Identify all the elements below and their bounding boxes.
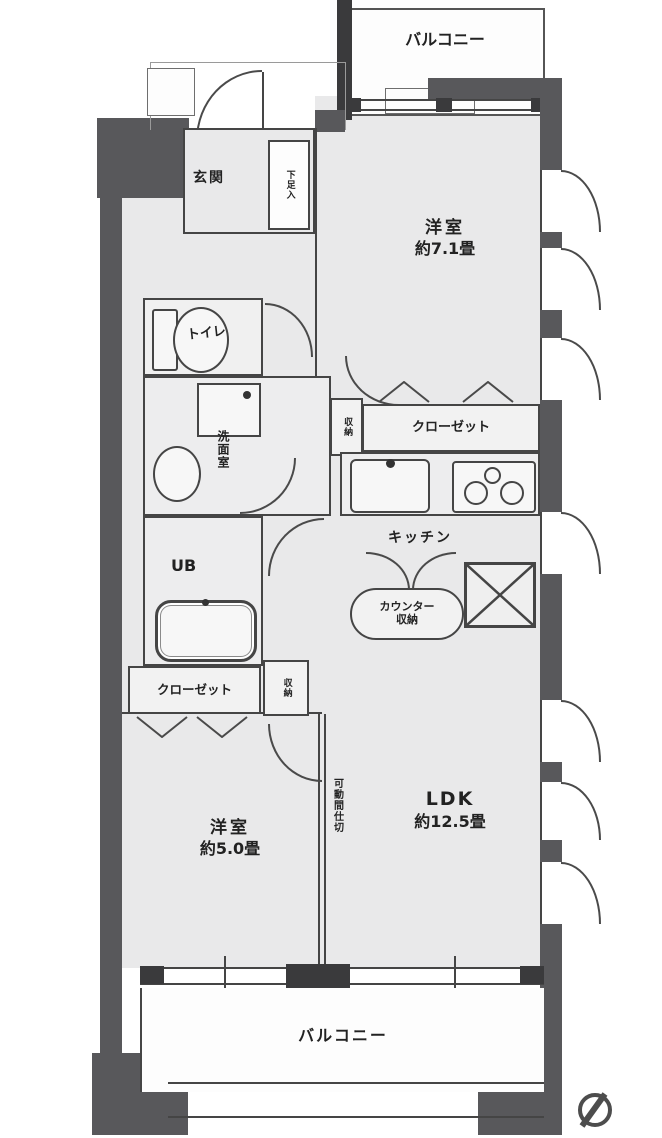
storage-top: 収納 (330, 398, 363, 456)
washbasin-icon (153, 446, 201, 502)
closet-top-bifold-icon (378, 381, 430, 403)
closet-bottom: クローゼット (128, 666, 261, 714)
closet-top-label: クローゼット (412, 420, 490, 436)
floor-plan: バルコニー 玄関 下足入 洋室 約7.1畳 (0, 0, 662, 1138)
stove-icon (452, 461, 536, 513)
room-western-7-size: 約7.1畳 (360, 239, 530, 259)
sliding-window-bottom (140, 964, 544, 988)
window-arc (561, 170, 601, 232)
window-arc (561, 782, 601, 840)
shoe-storage-label: 下足入 (283, 170, 294, 200)
refrigerator-space-icon (464, 562, 536, 628)
room-ldk-name: LDK (375, 788, 525, 812)
room-ldk-size: 約12.5畳 (375, 812, 525, 832)
closet-top-bifold-icon (462, 381, 514, 403)
bathtub-icon (155, 600, 257, 662)
kitchen-sink-icon (350, 459, 430, 513)
window-gap (540, 170, 562, 232)
window-arc (561, 338, 601, 400)
closet-bottom-bifold-icon (136, 716, 188, 738)
window-arc (561, 248, 601, 310)
compass-mark (570, 1086, 620, 1136)
balcony-top-label: バルコニー (347, 30, 543, 50)
storage-top-label: 収納 (341, 417, 352, 437)
kitchen-label: キッチン (360, 530, 480, 548)
room-western-7-name: 洋室 (360, 218, 530, 239)
window-gap (540, 512, 562, 574)
room7-left-wall-line (315, 128, 317, 406)
window-arc (561, 512, 601, 574)
shoe-storage: 下足入 (268, 140, 310, 230)
window-arc (561, 700, 601, 762)
room-western-5-name: 洋室 (150, 818, 310, 839)
room-western-5-label: 洋室 約5.0畳 (150, 818, 310, 859)
storage-bottom-label: 収納 (280, 678, 291, 698)
window-gap (540, 248, 562, 310)
wall-top-left-block (97, 118, 189, 198)
counter-storage-label-2: 収納 (380, 614, 435, 627)
meter-box (147, 68, 195, 116)
unit-bath-room: UB (143, 516, 263, 666)
room-western-7-label: 洋室 約7.1畳 (360, 218, 530, 259)
window-gap (540, 338, 562, 400)
room-ldk-label: LDK 約12.5畳 (375, 788, 525, 832)
balcony-bottom-area: バルコニー (140, 988, 544, 1092)
window-gap (540, 782, 562, 840)
window-arc (561, 862, 601, 924)
storage-bottom: 収納 (263, 660, 309, 716)
closet-bottom-bifold-icon (196, 716, 248, 738)
balcony-railing-line (168, 1082, 544, 1084)
counter-storage: カウンター 収納 (350, 588, 464, 640)
room-western-5-size: 約5.0畳 (150, 839, 310, 859)
wall-left (100, 196, 122, 1056)
washer-faucet-icon (243, 391, 251, 399)
sliding-window-top (352, 98, 540, 112)
washing-machine-icon (197, 383, 261, 437)
closet-top: クローゼット (362, 404, 540, 452)
balcony-railing-line (168, 1116, 544, 1118)
balcony-bottom-label: バルコニー (142, 1026, 544, 1046)
entrance-label: 玄関 (193, 170, 225, 188)
kitchen-counter (340, 452, 540, 516)
washroom-label: 洗面室 (215, 430, 230, 469)
movable-partition-label: 可動間仕切 (330, 778, 343, 938)
toilet-room: トイレ (143, 298, 263, 376)
window-gap (540, 862, 562, 924)
closet-bottom-label: クローゼット (157, 682, 232, 698)
washroom: 洗面室 (143, 376, 331, 516)
window-gap (540, 700, 562, 762)
unit-bath-label: UB (171, 556, 196, 576)
wall-top-right (428, 78, 540, 100)
